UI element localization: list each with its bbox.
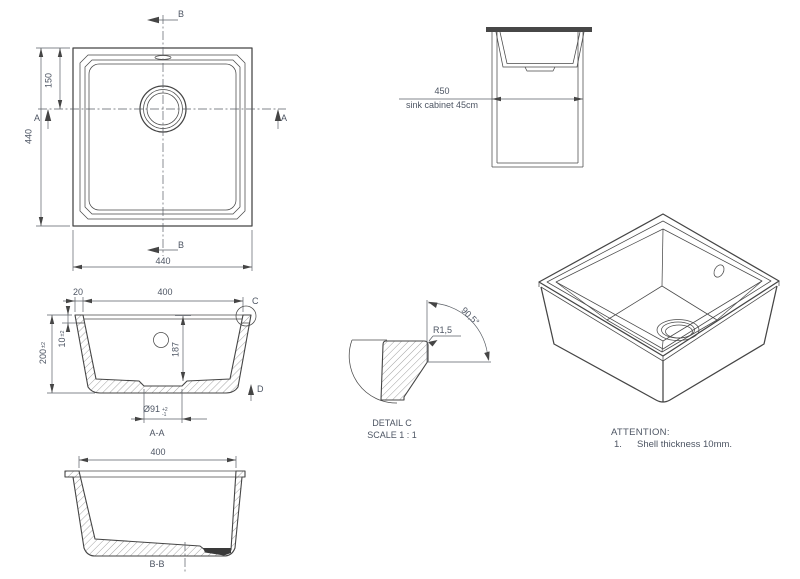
top-view xyxy=(36,15,286,271)
section-marker-b-top: B xyxy=(178,9,184,20)
cabinet-view xyxy=(399,27,592,167)
technical-drawing-page: B B A A 440 150 440 450 sink cabinet 45c… xyxy=(0,0,800,579)
dim-cabinet-width: 450 xyxy=(424,86,460,97)
view-marker-d: D xyxy=(257,384,264,395)
dim-inner-width-aa: 400 xyxy=(149,287,181,298)
dim-radius: R1,5 xyxy=(433,325,452,336)
section-aa-title: A-A xyxy=(139,428,175,439)
dim-drain-offset: 150 xyxy=(44,63,55,99)
drawing-canvas xyxy=(0,0,800,579)
dim-inner-depth: 187 xyxy=(171,332,182,368)
detail-c-title: DETAIL C xyxy=(362,418,422,429)
isometric-view xyxy=(539,214,779,402)
dim-rim-height: 10±2 xyxy=(57,321,69,357)
cabinet-caption: sink cabinet 45cm xyxy=(397,100,487,111)
section-marker-a-right: A xyxy=(281,113,287,124)
dim-overall-height-aa: 200±2 xyxy=(38,335,50,371)
section-bb-title: B-B xyxy=(139,559,175,570)
section-bb-view xyxy=(65,456,245,572)
section-marker-a-left: A xyxy=(34,113,40,124)
attention-item: 1.Shell thickness 10mm. xyxy=(614,439,732,450)
dim-rim-width: 20 xyxy=(70,287,86,298)
dim-drain-diameter: Ø91+2-1 xyxy=(143,404,168,418)
dim-overall-width: 440 xyxy=(145,256,181,267)
dim-overall-height: 440 xyxy=(24,119,35,155)
dim-inner-width-bb: 400 xyxy=(140,447,176,458)
section-marker-b-bottom: B xyxy=(178,240,184,251)
detail-c-scale: SCALE 1 : 1 xyxy=(359,430,425,441)
detail-marker-c: C xyxy=(252,296,259,307)
attention-heading: ATTENTION: xyxy=(611,427,670,438)
